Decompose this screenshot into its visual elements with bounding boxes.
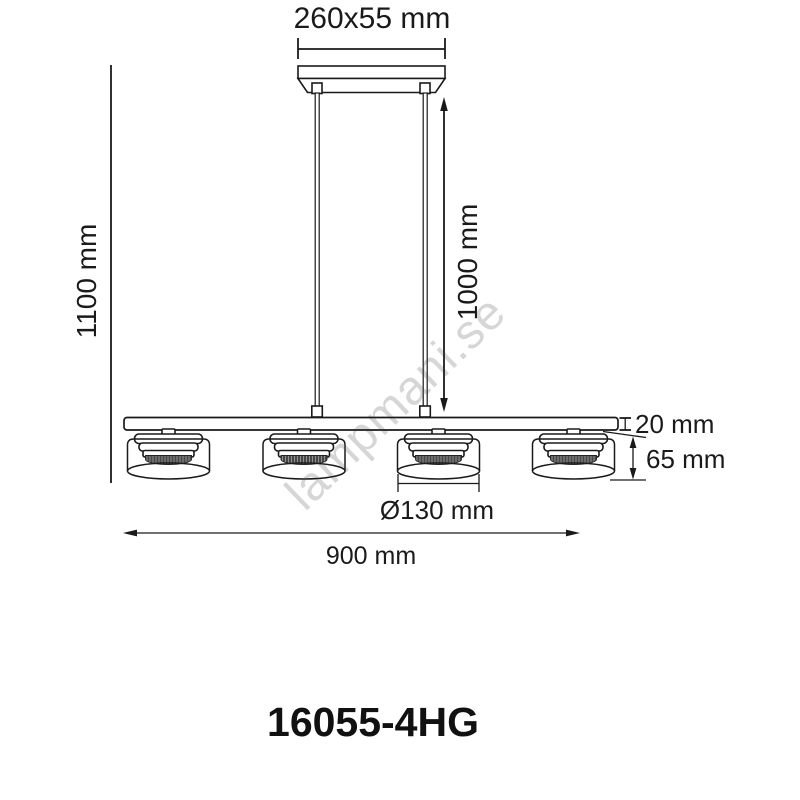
glass-shade-rim: [398, 463, 480, 479]
shade-height-label: 65 mm: [646, 444, 725, 474]
fixture-width-label: 900 mm: [326, 542, 416, 570]
arrow-down-icon: [630, 468, 637, 480]
arrow-down-icon: [440, 398, 448, 412]
cable-left: [315, 93, 319, 407]
lamp-dimension-diagram: 260x55 mm 1100 mm 1000 mm: [0, 0, 800, 800]
cable-top-connector-left: [312, 83, 322, 94]
cable-bottom-connector-left: [312, 406, 323, 417]
shade-diameter-label: Ø130 mm: [380, 495, 494, 525]
lamp-shade-3: [398, 429, 480, 479]
glass-shade-rim: [533, 463, 615, 479]
product-code: 16055-4HG: [267, 699, 479, 745]
cable-top-connector-right: [420, 83, 430, 94]
arrow-left-icon: [123, 530, 137, 537]
watermark-text: lampmani.se: [276, 286, 516, 521]
glass-shade-rim: [128, 463, 210, 479]
lamp-shade-4: [533, 429, 615, 479]
total-height-dimension: 1100 mm: [71, 65, 111, 483]
lamp-shade-1: [128, 429, 210, 479]
canopy-top: [298, 66, 445, 79]
bar-thickness-dimension: 20 mm: [620, 409, 715, 439]
arrow-up-icon: [440, 97, 448, 111]
fixture-width-dimension: 900 mm: [123, 530, 580, 570]
total-height-label: 1100 mm: [71, 224, 102, 339]
shade-diameter-dimension: Ø130 mm: [380, 474, 494, 525]
canopy-dimension: 260x55 mm: [294, 2, 451, 59]
bar-thickness-label: 20 mm: [635, 409, 714, 439]
canopy-size-label: 260x55 mm: [294, 2, 451, 35]
arrow-right-icon: [566, 530, 580, 537]
